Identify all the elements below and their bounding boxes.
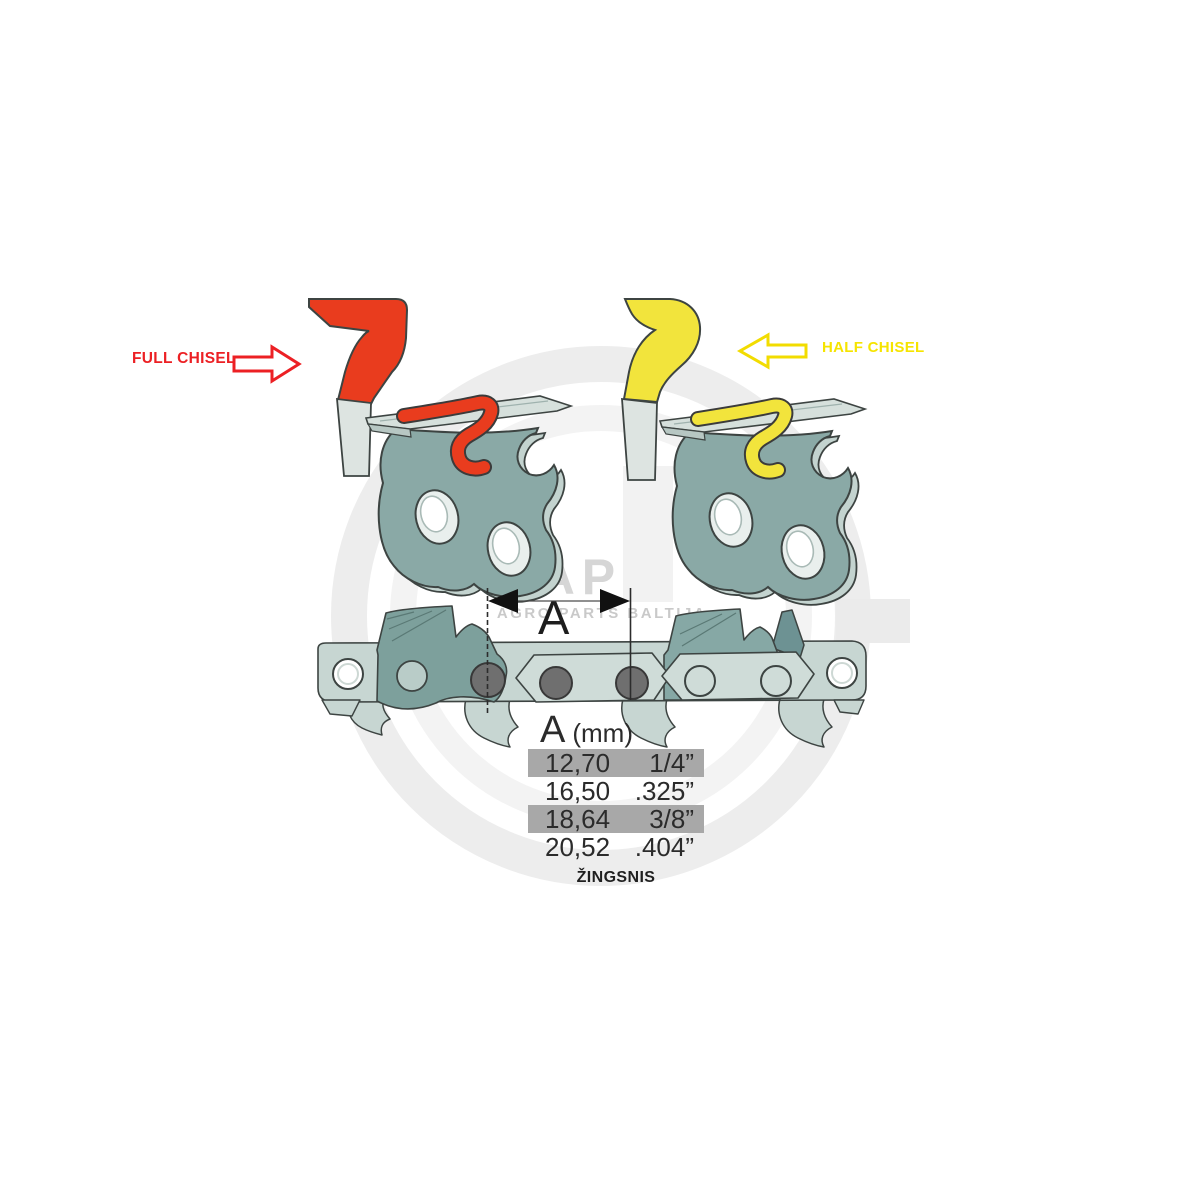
full-chisel-cutter-shape — [309, 299, 407, 404]
link-body — [379, 428, 558, 597]
full-chisel-arrow-icon — [234, 347, 299, 381]
rivet-dark — [616, 667, 648, 699]
full-chisel-leg — [337, 399, 371, 476]
drive-tooth — [465, 699, 518, 747]
half-chisel-arrow-icon — [740, 335, 806, 367]
rivet-dark — [540, 667, 572, 699]
tie-strap-hex-right — [662, 652, 814, 700]
half-chisel-leg — [622, 399, 657, 480]
rivet-flush — [397, 661, 427, 691]
cutter-link-right — [660, 399, 865, 605]
drive-tooth — [622, 699, 675, 747]
rivet-hollow — [685, 666, 715, 696]
chain-side-view — [318, 606, 866, 747]
diagram-artwork — [0, 0, 1188, 1188]
chainsaw-chain-pitch-diagram: APB AGRO PARTS BALTIJA — [0, 0, 1188, 1188]
rivet-hollow — [761, 666, 791, 696]
watermark-bar — [623, 466, 673, 602]
link-body — [673, 431, 852, 600]
watermark-crossbar — [836, 599, 910, 643]
